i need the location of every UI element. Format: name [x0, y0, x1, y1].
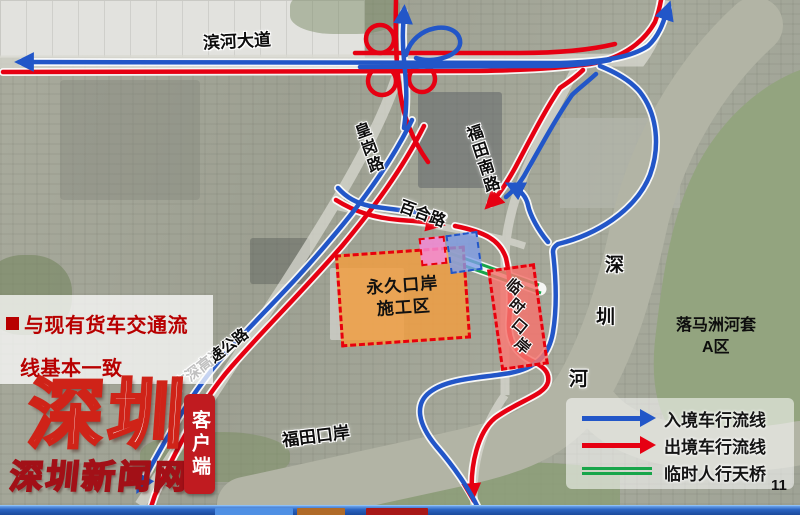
inbound-arrow-icon: [580, 408, 664, 428]
legend-label: 临时人行天桥: [664, 460, 766, 485]
label-river-char2: 圳: [596, 308, 615, 328]
zone-label-line2: 施工区: [376, 295, 431, 320]
taskbar-item[interactable]: [366, 508, 428, 515]
legend-box: 入境车行流线 出境车行流线 临时人行天桥: [566, 398, 794, 489]
bullet-square-icon: [6, 317, 19, 330]
taskbar-item[interactable]: [297, 508, 345, 515]
annotation-banner: 与现有货车交通流 线基本一致: [0, 295, 213, 384]
page-number: 11: [771, 477, 787, 494]
label-river-char3: 河: [569, 370, 588, 390]
sznews-logo-text: 深圳新闻网: [8, 460, 191, 493]
taskbar-item[interactable]: [215, 508, 293, 515]
legend-row-outbound: 出境车行流线: [580, 432, 786, 458]
pink-facility-zone: [419, 236, 448, 267]
client-app-badge: 客户端: [184, 394, 215, 494]
taskbar[interactable]: [0, 505, 800, 515]
zone-label-temporary: 临时口岸: [505, 276, 531, 358]
label-binhe-avenue: 滨河大道: [203, 31, 272, 52]
annotation-line1: 与现有货车交通流: [24, 309, 188, 338]
legend-row-footbridge: 临时人行天桥: [580, 459, 786, 485]
label-lok-ma-chau-line1: 落马洲河套: [676, 318, 756, 335]
legend-row-inbound: 入境车行流线: [580, 405, 786, 431]
blue-facility-zone: [445, 231, 482, 274]
label-lok-ma-chau-line2: A区: [702, 340, 730, 357]
outbound-arrow-icon: [580, 435, 664, 455]
client-app-badge-text: 客户端: [190, 410, 209, 479]
slide-map-view: 永久口岸 施工区 临时口岸 滨河大道 皇岗路 福田南路 百合路 广深高速公路 福…: [0, 0, 800, 515]
label-river-char1: 深: [605, 256, 624, 276]
footbridge-lines-icon: [580, 462, 664, 482]
legend-label: 入境车行流线: [664, 406, 766, 431]
legend-label: 出境车行流线: [664, 433, 766, 458]
sznews-logo-mark: 深圳: [25, 378, 190, 454]
